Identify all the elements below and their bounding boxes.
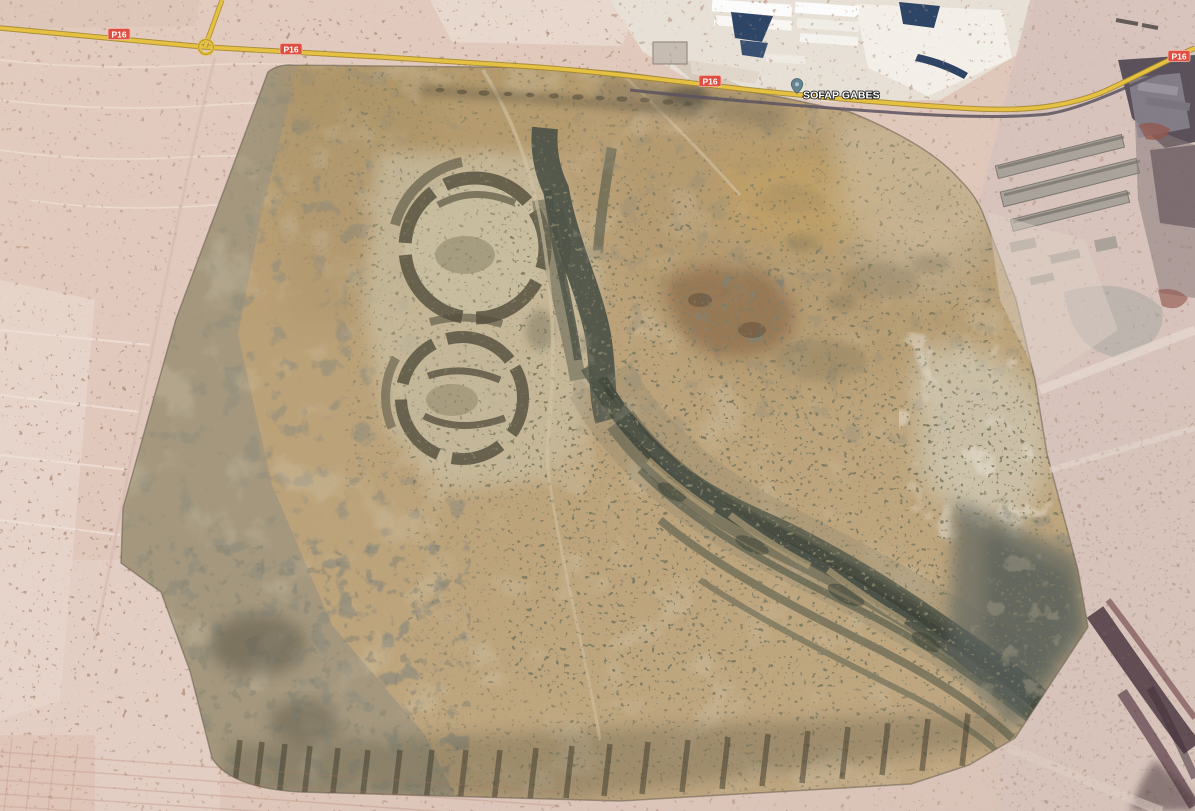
svg-text:P16: P16 bbox=[283, 44, 298, 54]
svg-text:SOFAP GABES: SOFAP GABES bbox=[803, 90, 880, 102]
svg-text:P16: P16 bbox=[1171, 51, 1186, 61]
svg-text:P16: P16 bbox=[111, 29, 126, 39]
svg-text:P16: P16 bbox=[702, 76, 717, 86]
